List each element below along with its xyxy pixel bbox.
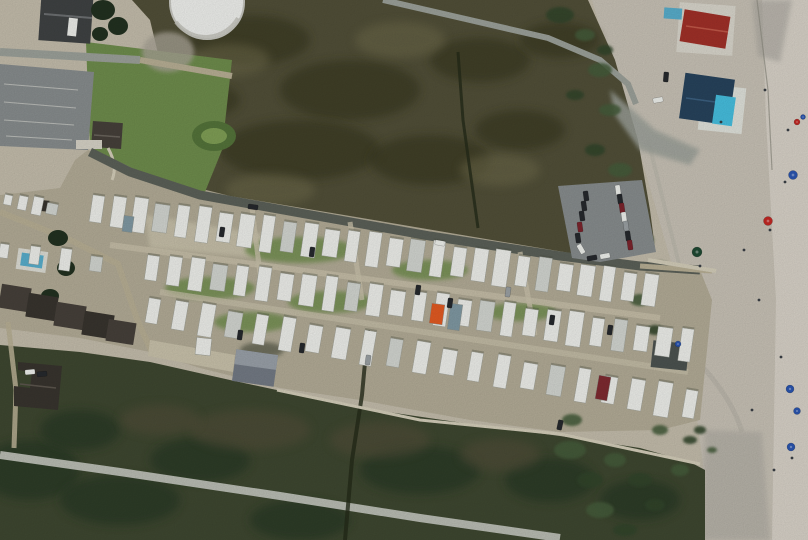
photo-grain-overlay xyxy=(0,0,808,540)
aerial-photo xyxy=(0,0,808,540)
aerial-photo-stage xyxy=(0,0,808,540)
